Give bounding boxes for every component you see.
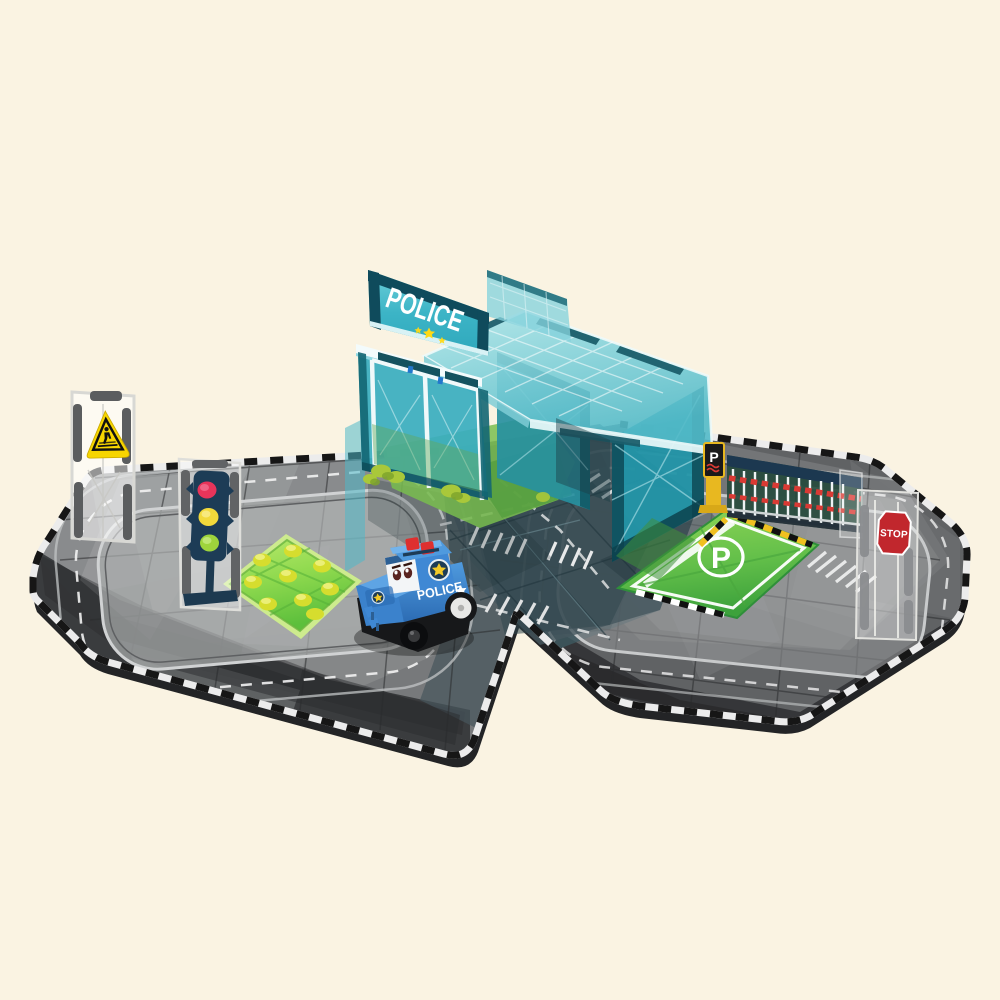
svg-text:P: P bbox=[711, 542, 731, 575]
svg-text:P: P bbox=[709, 449, 718, 465]
svg-text:STOP: STOP bbox=[880, 528, 909, 541]
